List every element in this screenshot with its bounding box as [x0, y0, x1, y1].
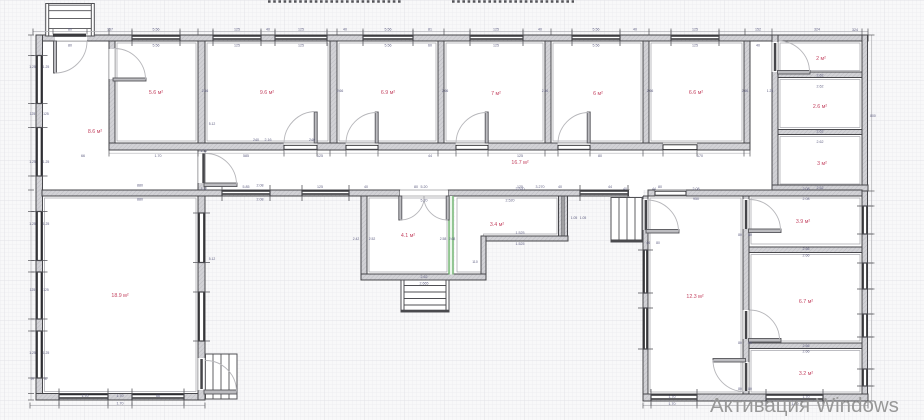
svg-text:125: 125: [493, 44, 499, 48]
svg-text:2.66: 2.66: [803, 350, 810, 354]
svg-text:40: 40: [623, 187, 627, 191]
svg-text:2.66: 2.66: [803, 254, 810, 258]
svg-text:125: 125: [234, 44, 240, 48]
svg-text:2.08: 2.08: [693, 187, 700, 191]
svg-text:125: 125: [317, 154, 323, 158]
svg-text:2.62: 2.62: [817, 186, 824, 190]
svg-text:6.7 м²: 6.7 м²: [799, 299, 813, 305]
svg-text:240: 240: [253, 138, 259, 142]
svg-text:2.66: 2.66: [803, 344, 810, 348]
svg-text:2.62: 2.62: [817, 130, 824, 134]
svg-text:5.56: 5.56: [385, 28, 392, 32]
svg-text:1.70: 1.70: [117, 394, 124, 398]
svg-text:60: 60: [428, 44, 432, 48]
svg-text:1.70: 1.70: [155, 154, 162, 158]
svg-text:80: 80: [738, 387, 742, 391]
svg-text:2.66: 2.66: [647, 89, 654, 93]
svg-text:80: 80: [656, 241, 660, 245]
svg-text:157: 157: [107, 28, 113, 32]
svg-text:2.66: 2.66: [742, 89, 749, 93]
svg-text:2.66: 2.66: [202, 89, 209, 93]
svg-text:2.08: 2.08: [803, 187, 810, 191]
svg-text:5.56: 5.56: [593, 44, 600, 48]
svg-text:125: 125: [517, 154, 523, 158]
svg-text:3.4 м²: 3.4 м²: [490, 222, 504, 228]
svg-text:1.25: 1.25: [29, 351, 36, 355]
svg-text:16.7 м²: 16.7 м²: [511, 160, 528, 166]
svg-text:1.70: 1.70: [82, 394, 89, 398]
svg-text:5.12: 5.12: [209, 257, 216, 261]
svg-text:2.62: 2.62: [817, 85, 824, 89]
svg-text:44: 44: [652, 187, 656, 191]
svg-text:40: 40: [756, 44, 760, 48]
svg-text:44: 44: [608, 185, 612, 189]
svg-text:80: 80: [68, 28, 72, 32]
svg-text:7 м²: 7 м²: [491, 91, 501, 97]
svg-text:125: 125: [298, 44, 304, 48]
svg-text:2.52: 2.52: [369, 237, 376, 241]
svg-text:2.42: 2.42: [353, 237, 360, 241]
svg-text:40: 40: [633, 28, 637, 32]
svg-text:44: 44: [428, 154, 432, 158]
svg-text:80: 80: [598, 154, 602, 158]
svg-text:5.12: 5.12: [209, 122, 216, 126]
svg-text:170: 170: [697, 154, 703, 158]
svg-text:125: 125: [43, 112, 49, 116]
svg-text:3.9 м²: 3.9 м²: [796, 219, 810, 225]
svg-text:880: 880: [137, 198, 143, 202]
svg-text:110: 110: [472, 260, 478, 264]
svg-text:2.66: 2.66: [337, 89, 344, 93]
svg-text:66: 66: [81, 154, 85, 158]
svg-text:40: 40: [364, 185, 368, 189]
svg-text:1.12: 1.12: [201, 149, 208, 153]
svg-text:12.3 м²: 12.3 м²: [686, 294, 703, 300]
svg-text:5.6 м²: 5.6 м²: [149, 90, 163, 96]
svg-text:81: 81: [428, 28, 432, 32]
svg-text:1.525: 1.525: [516, 231, 525, 235]
svg-text:66: 66: [156, 394, 160, 398]
svg-text:8.6 м²: 8.6 м²: [88, 129, 102, 135]
svg-text:40: 40: [343, 28, 347, 32]
svg-text:1.25: 1.25: [29, 222, 36, 226]
svg-text:80: 80: [68, 44, 72, 48]
svg-text:1.25: 1.25: [29, 65, 36, 69]
svg-text:2.62: 2.62: [817, 74, 824, 78]
svg-text:1.12: 1.12: [201, 187, 208, 191]
svg-text:18.9 м²: 18.9 м²: [111, 293, 128, 299]
svg-text:80: 80: [738, 233, 742, 237]
svg-text:324: 324: [814, 28, 820, 32]
svg-text:125: 125: [234, 28, 240, 32]
svg-text:80: 80: [748, 233, 752, 237]
svg-text:2.66: 2.66: [442, 89, 449, 93]
svg-text:1.525: 1.525: [516, 242, 525, 246]
svg-text:5.85: 5.85: [243, 185, 250, 189]
svg-text:57: 57: [44, 377, 48, 381]
svg-text:3.270: 3.270: [536, 185, 545, 189]
svg-text:1.05: 1.05: [571, 216, 578, 220]
svg-text:6.6 м²: 6.6 м²: [689, 90, 703, 96]
svg-text:585: 585: [243, 154, 249, 158]
svg-text:125: 125: [692, 44, 698, 48]
svg-text:80: 80: [748, 341, 752, 345]
svg-text:1.70: 1.70: [669, 402, 676, 406]
svg-text:4.1 м²: 4.1 м²: [401, 233, 415, 239]
svg-text:80: 80: [738, 341, 742, 345]
svg-text:9.6 м²: 9.6 м²: [260, 90, 274, 96]
svg-text:125: 125: [43, 288, 49, 292]
svg-text:80: 80: [658, 185, 662, 189]
svg-text:324: 324: [852, 28, 858, 32]
svg-text:44: 44: [646, 241, 650, 245]
svg-text:57: 57: [31, 377, 35, 381]
svg-text:1.05: 1.05: [580, 216, 587, 220]
svg-text:125: 125: [692, 28, 698, 32]
svg-text:125: 125: [493, 28, 499, 32]
svg-text:5.56: 5.56: [153, 44, 160, 48]
svg-text:2.08: 2.08: [803, 197, 810, 201]
svg-text:1.26: 1.26: [767, 89, 774, 93]
svg-text:5.20: 5.20: [421, 199, 428, 203]
svg-text:2.62: 2.62: [421, 275, 428, 279]
svg-text:40: 40: [266, 28, 270, 32]
svg-text:80: 80: [748, 387, 752, 391]
svg-text:2.665: 2.665: [420, 282, 429, 286]
svg-text:800: 800: [870, 114, 876, 118]
svg-text:Активация Windows: Активация Windows: [710, 394, 899, 417]
svg-text:950: 950: [693, 197, 699, 201]
svg-text:1.25: 1.25: [43, 160, 50, 164]
svg-text:125: 125: [317, 185, 323, 189]
svg-text:152: 152: [755, 28, 761, 32]
svg-text:2.08: 2.08: [257, 198, 264, 202]
svg-text:3.2 м²: 3.2 м²: [799, 371, 813, 377]
svg-text:40: 40: [538, 28, 542, 32]
svg-text:3 м²: 3 м²: [817, 161, 827, 167]
svg-text:2 м²: 2 м²: [816, 56, 826, 62]
svg-text:240: 240: [309, 138, 315, 142]
svg-text:2.6 м²: 2.6 м²: [813, 104, 827, 110]
svg-text:6.9 м²: 6.9 м²: [381, 90, 395, 96]
svg-text:2.66: 2.66: [803, 247, 810, 251]
svg-text:1.25: 1.25: [43, 65, 50, 69]
svg-text:40: 40: [558, 185, 562, 189]
svg-text:880: 880: [137, 184, 143, 188]
svg-text:2.520: 2.520: [516, 187, 525, 191]
svg-text:5.56: 5.56: [153, 28, 160, 32]
svg-text:2.520: 2.520: [506, 199, 515, 203]
svg-text:2.62: 2.62: [817, 140, 824, 144]
svg-text:5.56: 5.56: [593, 28, 600, 32]
svg-text:2.68: 2.68: [449, 237, 456, 241]
svg-text:5.20: 5.20: [421, 185, 428, 189]
svg-text:125: 125: [30, 288, 36, 292]
svg-text:1.25: 1.25: [43, 222, 50, 226]
svg-text:80: 80: [414, 185, 418, 189]
svg-text:2.08: 2.08: [257, 184, 264, 188]
svg-text:125: 125: [30, 112, 36, 116]
svg-text:5.56: 5.56: [385, 44, 392, 48]
svg-text:2.66: 2.66: [542, 89, 549, 93]
svg-text:125: 125: [298, 28, 304, 32]
svg-text:2.16: 2.16: [265, 138, 272, 142]
svg-text:6 м²: 6 м²: [593, 91, 603, 97]
svg-text:2.58: 2.58: [440, 237, 447, 241]
svg-text:1.70: 1.70: [669, 395, 676, 399]
svg-text:1.25: 1.25: [29, 160, 36, 164]
svg-text:1.25: 1.25: [43, 351, 50, 355]
svg-text:1.70: 1.70: [117, 402, 124, 406]
